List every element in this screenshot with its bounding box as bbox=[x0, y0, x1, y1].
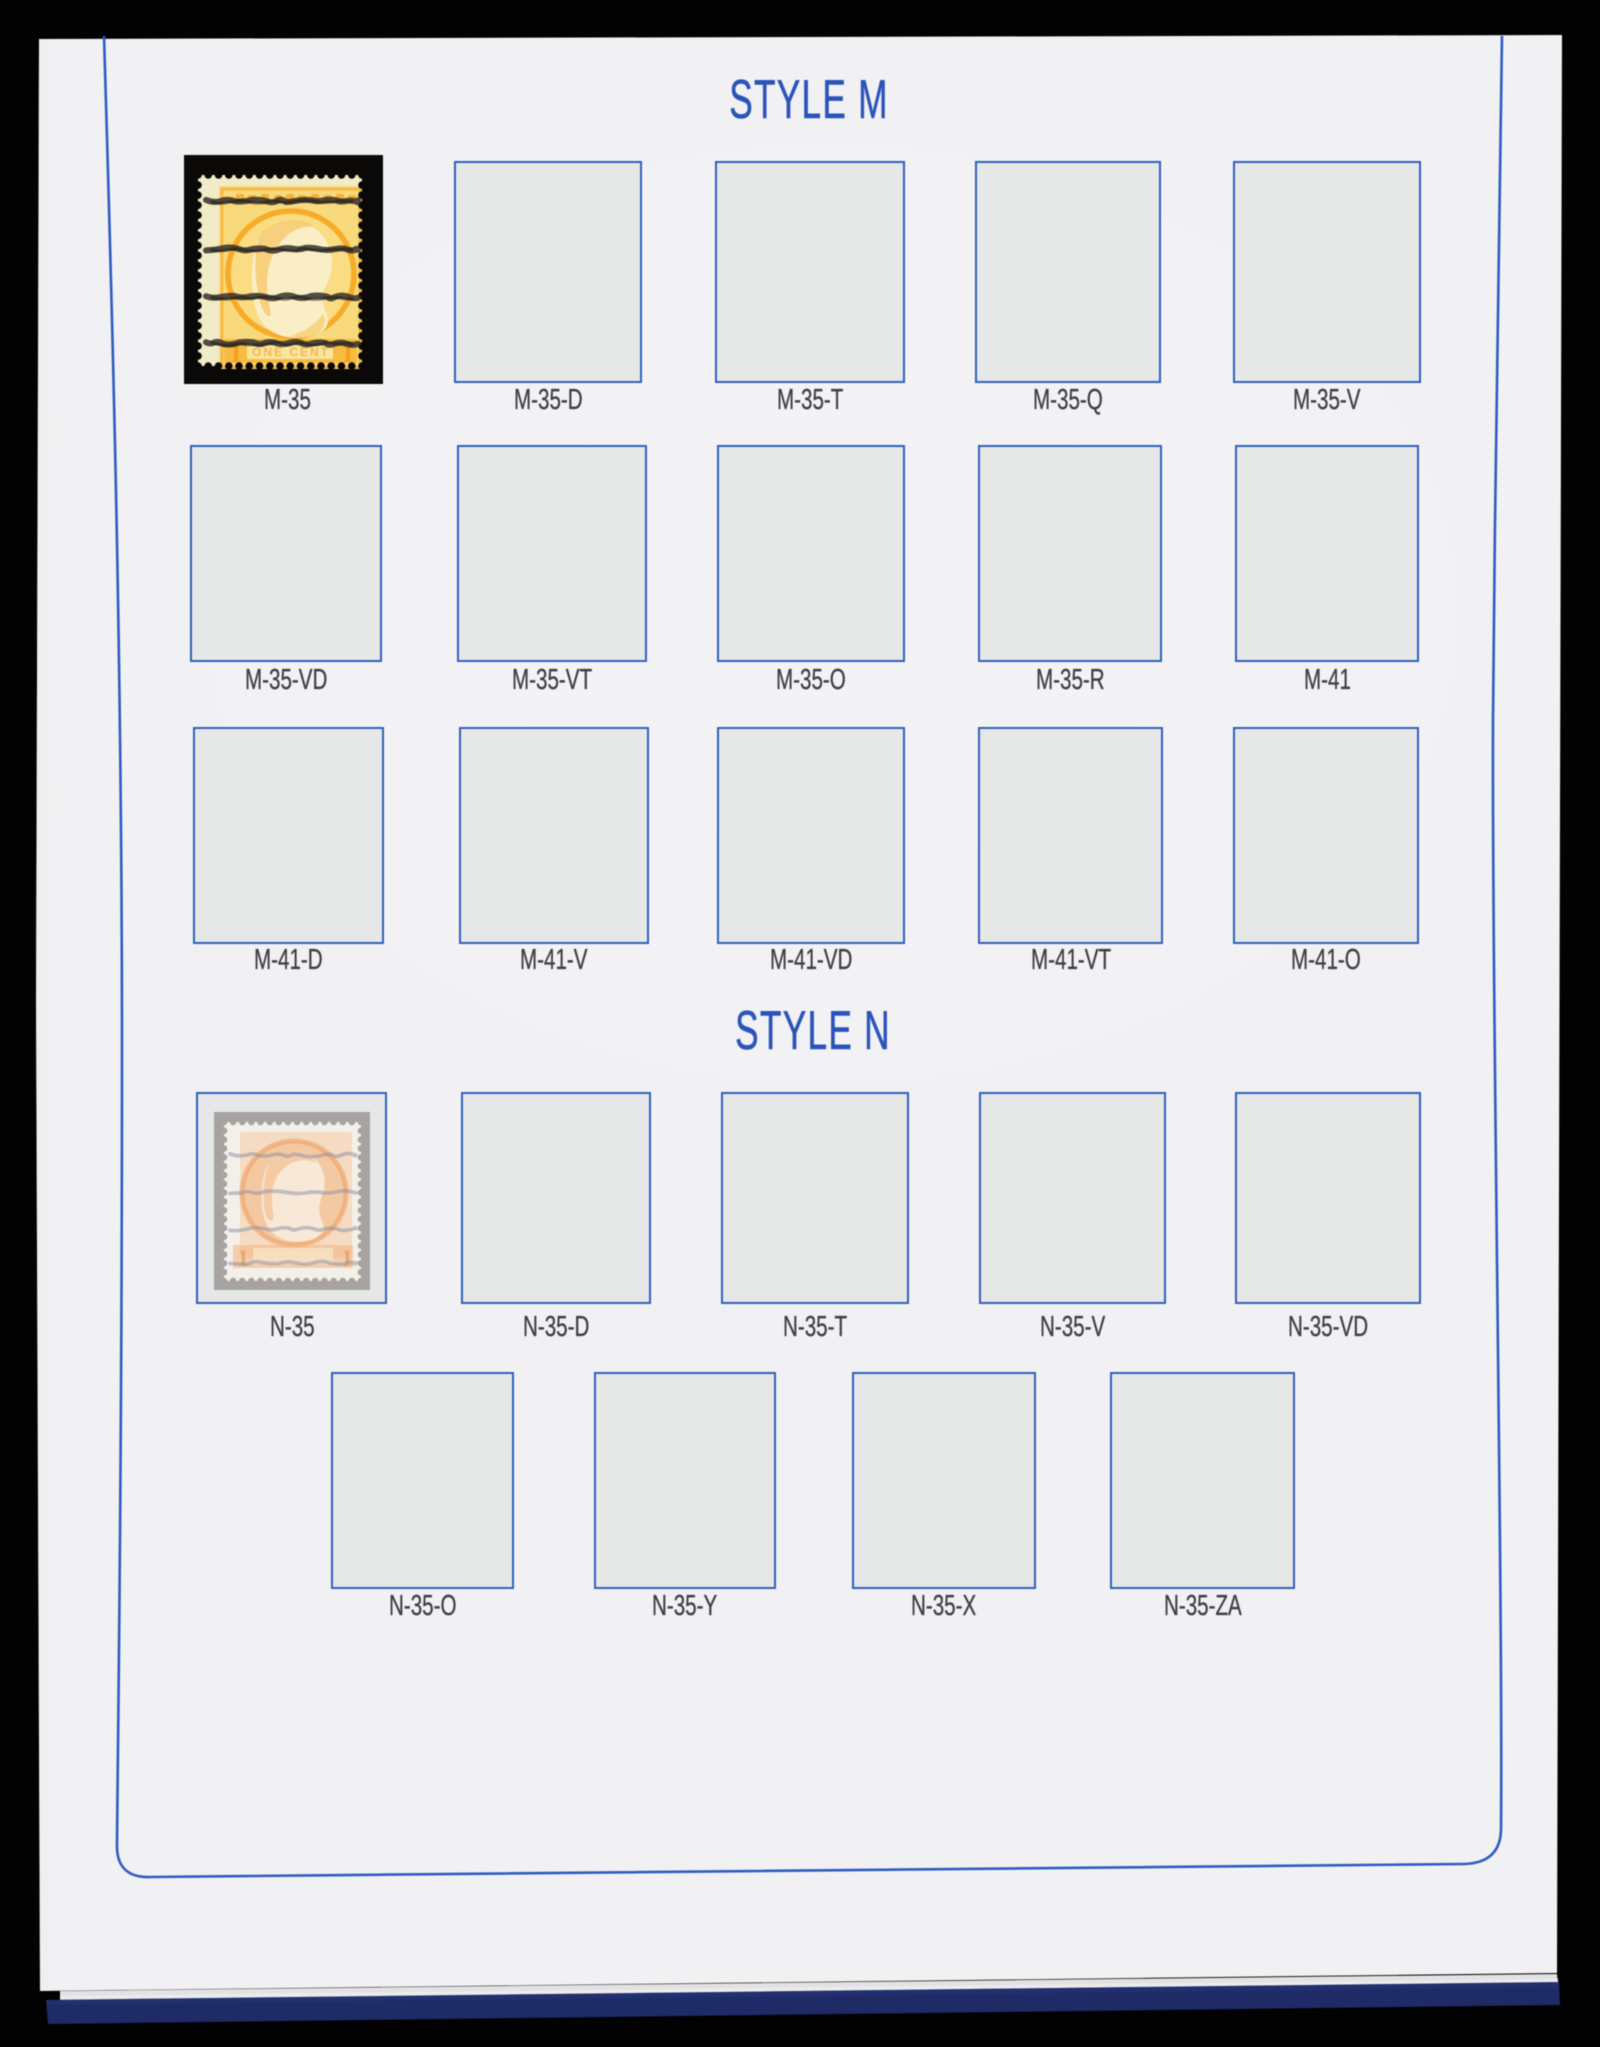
svg-text:1: 1 bbox=[341, 1246, 353, 1272]
svg-text:1: 1 bbox=[237, 1246, 249, 1272]
svg-text:ONE CENT: ONE CENT bbox=[252, 345, 329, 359]
